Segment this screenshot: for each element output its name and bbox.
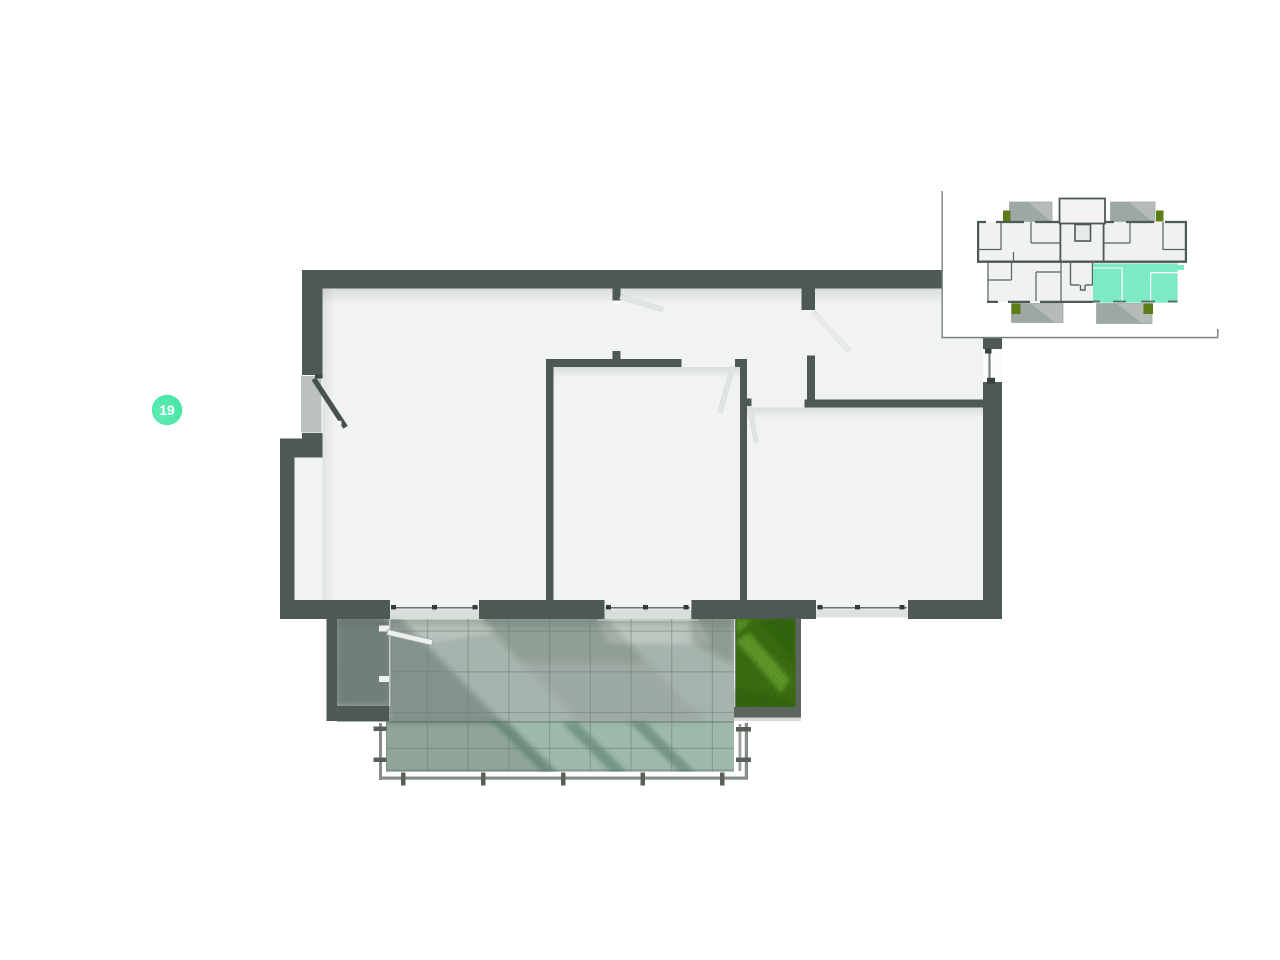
svg-text:19: 19 — [159, 403, 175, 418]
